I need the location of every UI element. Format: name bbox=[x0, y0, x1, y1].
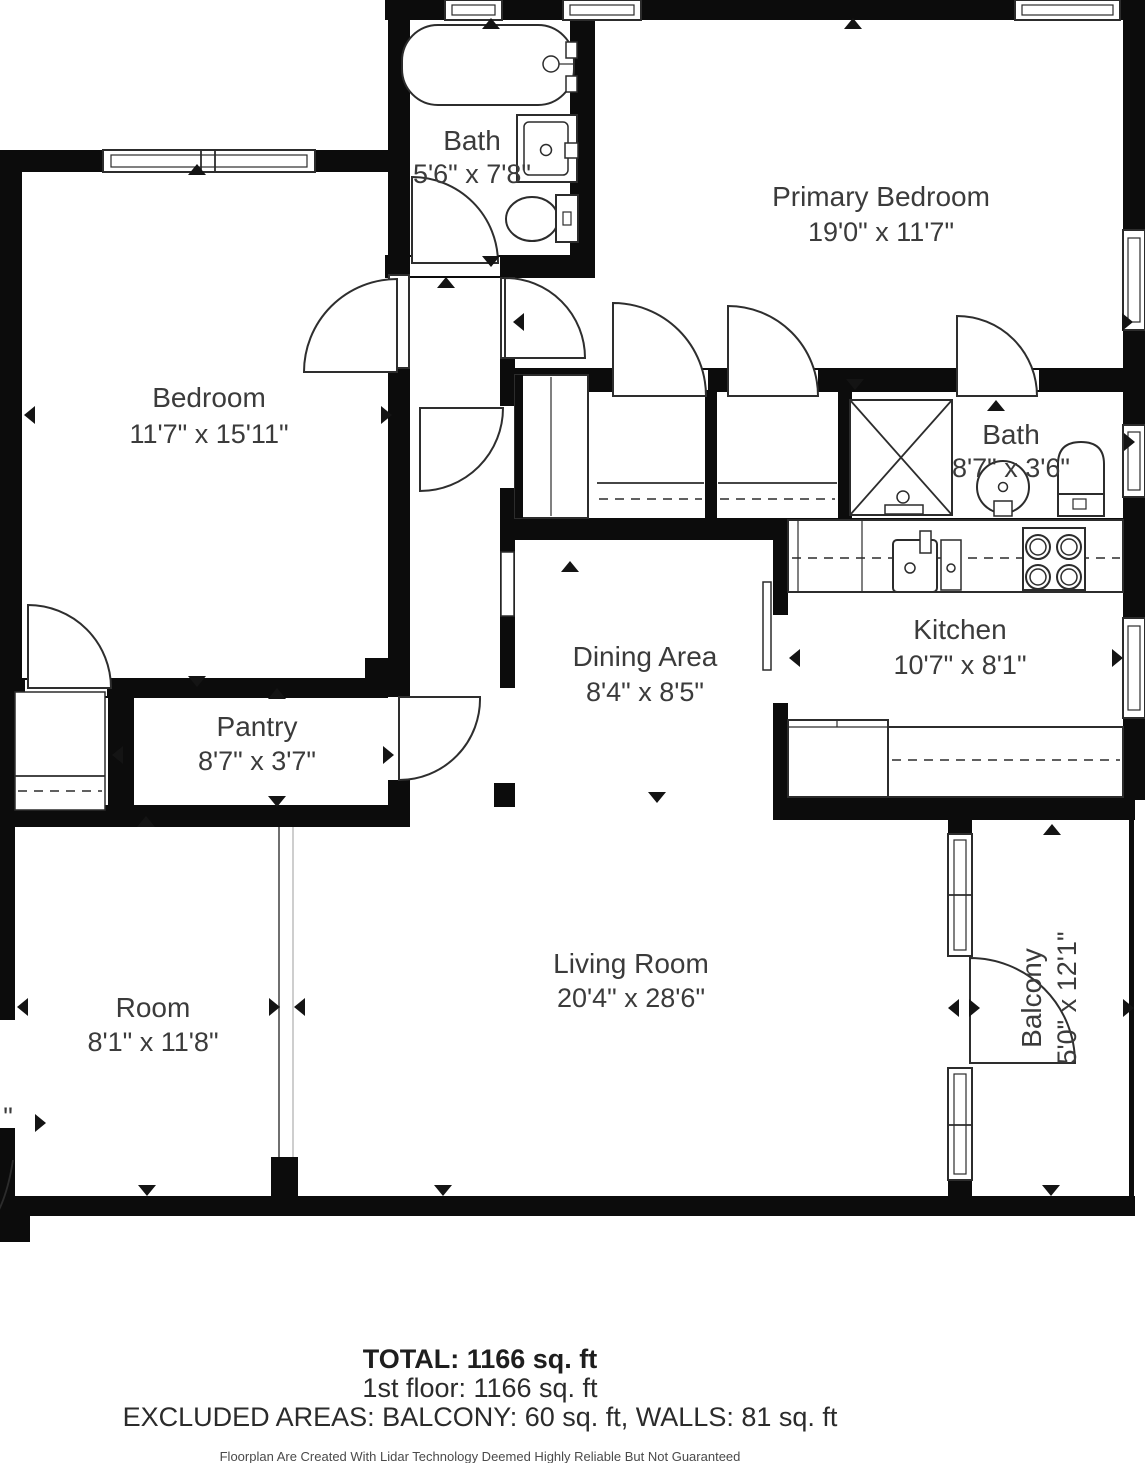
door-arc bbox=[420, 408, 503, 491]
total-area-text: TOTAL: 1166 sq. ft bbox=[363, 1344, 598, 1374]
room-dims: 20'4" x 28'6" bbox=[557, 983, 705, 1013]
room-divider bbox=[279, 827, 293, 1157]
room-name: Bath bbox=[982, 419, 1040, 450]
kitchen-island-counter bbox=[788, 720, 1123, 797]
room-dims: 10'7" x 8'1" bbox=[893, 650, 1026, 680]
door-arc bbox=[399, 697, 480, 780]
room-dims: 5'0" x 12'1" bbox=[1052, 931, 1082, 1064]
room-name: Bedroom bbox=[152, 382, 266, 413]
room-name: Pantry bbox=[217, 711, 298, 742]
room-bath-1: Bath 5'6" x 7'8" bbox=[413, 125, 531, 189]
room-kitchen: Kitchen 10'7" x 8'1" bbox=[893, 614, 1026, 680]
room-dims: 19'0" x 11'7" bbox=[808, 217, 954, 247]
window-icon bbox=[103, 150, 315, 172]
room-dims: 11'7" x 15'11" bbox=[129, 419, 288, 449]
shower-icon bbox=[850, 400, 952, 515]
floorplan-drawing: Bath 5'6" x 7'8" Primary Bedroom 19'0" x… bbox=[0, 0, 1145, 1463]
room-name: Living Room bbox=[553, 948, 709, 979]
door-arc bbox=[412, 177, 498, 263]
room-name: Dining Area bbox=[573, 641, 718, 672]
excluded-areas-text: EXCLUDED AREAS: BALCONY: 60 sq. ft, WALL… bbox=[123, 1402, 838, 1432]
door-arc bbox=[957, 316, 1037, 396]
room-name: Kitchen bbox=[913, 614, 1006, 645]
room-name: Balcony bbox=[1016, 948, 1047, 1048]
door-arc bbox=[304, 279, 397, 372]
window-icon bbox=[1123, 230, 1145, 330]
clipped-dimension-fragment: " bbox=[3, 1102, 13, 1132]
room-dims: 5'6" x 7'8" bbox=[413, 159, 531, 189]
kitchen-sink-icon bbox=[893, 531, 961, 592]
room-dims: 8'7" x 3'6" bbox=[952, 453, 1070, 483]
window-icon bbox=[763, 582, 771, 670]
window-icon bbox=[563, 0, 641, 20]
bedroom-closet bbox=[15, 692, 105, 810]
window-icon bbox=[445, 0, 502, 20]
summary: TOTAL: 1166 sq. ft 1st floor: 1166 sq. f… bbox=[123, 1344, 838, 1463]
cabinet-icon bbox=[515, 375, 588, 518]
window-icon bbox=[948, 1068, 972, 1180]
window-icon bbox=[1015, 0, 1120, 20]
room-room: Room 8'1" x 11'8" bbox=[87, 992, 218, 1057]
room-living-room: Living Room 20'4" x 28'6" bbox=[553, 948, 709, 1013]
room-pantry: Pantry 8'7" x 3'7" bbox=[198, 711, 316, 776]
room-bedroom: Bedroom 11'7" x 15'11" bbox=[129, 382, 288, 449]
door-arc bbox=[613, 303, 706, 396]
room-name: Room bbox=[116, 992, 191, 1023]
stove-icon bbox=[1023, 528, 1085, 590]
room-dims: 8'7" x 3'7" bbox=[198, 746, 316, 776]
disclaimer-text: Floorplan Are Created With Lidar Technol… bbox=[220, 1449, 741, 1463]
room-name: Primary Bedroom bbox=[772, 181, 990, 212]
first-floor-area-text: 1st floor: 1166 sq. ft bbox=[362, 1373, 598, 1403]
room-name: Bath bbox=[443, 125, 501, 156]
door-arc bbox=[505, 278, 585, 358]
window-icon bbox=[948, 834, 972, 956]
room-dining-area: Dining Area 8'4" x 8'5" bbox=[573, 641, 718, 707]
bathtub-icon bbox=[402, 25, 577, 105]
floorplan-page: Bath 5'6" x 7'8" Primary Bedroom 19'0" x… bbox=[0, 0, 1145, 1463]
window-icon bbox=[501, 552, 514, 616]
door-arc bbox=[28, 605, 111, 688]
room-primary-bedroom: Primary Bedroom 19'0" x 11'7" bbox=[772, 181, 990, 247]
room-bath-2: Bath 8'7" x 3'6" bbox=[952, 419, 1070, 483]
toilet-icon bbox=[506, 195, 578, 242]
room-dims: 8'4" x 8'5" bbox=[586, 677, 704, 707]
doors bbox=[0, 177, 1075, 1228]
window-icon bbox=[1123, 618, 1145, 718]
door-arc bbox=[728, 306, 818, 396]
room-dims: 8'1" x 11'8" bbox=[87, 1027, 218, 1057]
